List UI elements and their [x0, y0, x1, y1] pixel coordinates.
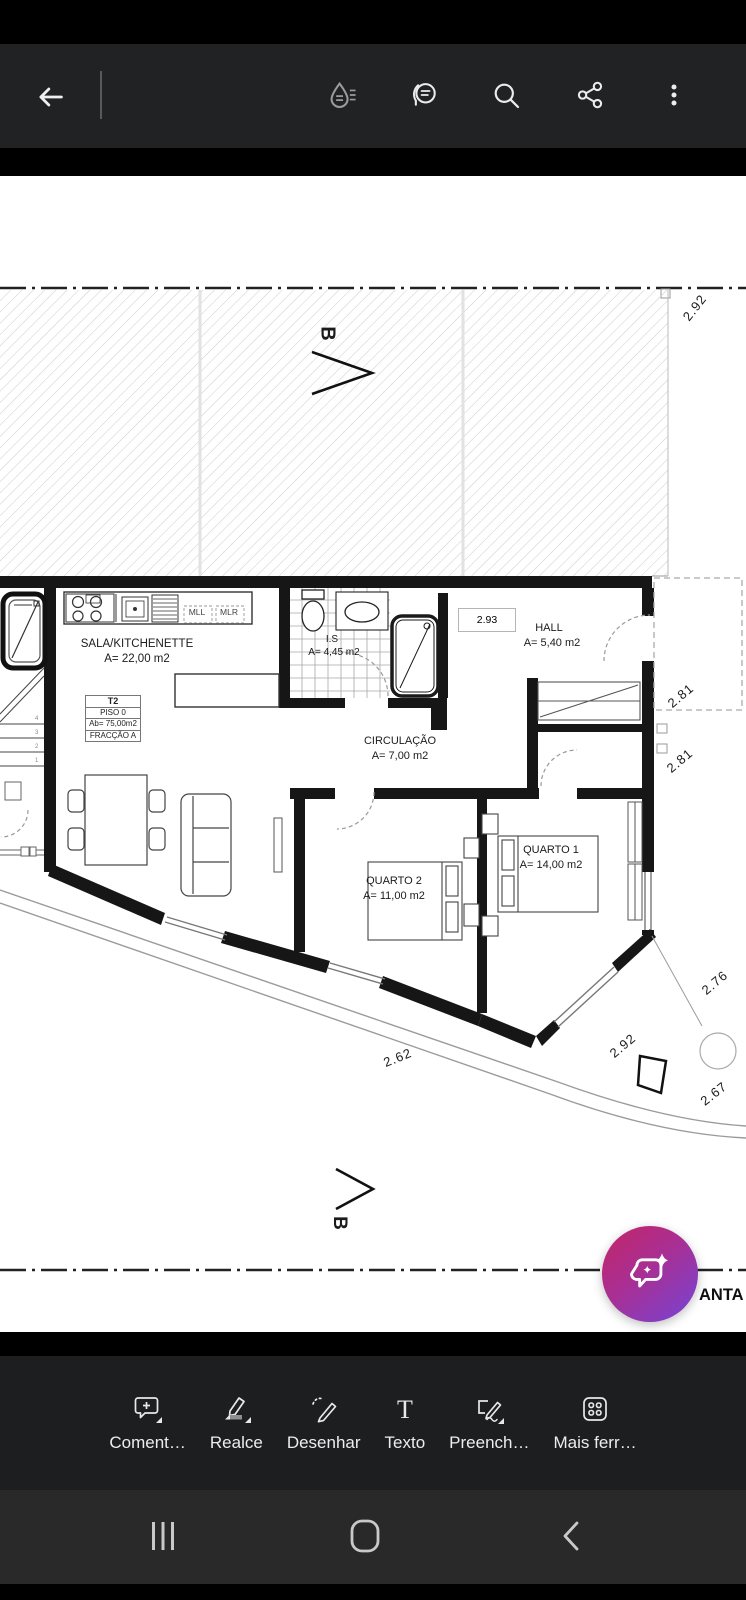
svg-text:T: T — [397, 1395, 413, 1424]
tool-label: Mais ferr… — [554, 1433, 637, 1453]
room-label-quarto2: QUARTO 2 — [336, 875, 452, 887]
annotation-toolbar: Coment… Realce Desenhar T Texto Preench… — [0, 1356, 746, 1490]
draw-pencil-icon — [309, 1394, 339, 1424]
room-label-circulacao: CIRCULAÇÃO — [340, 735, 460, 747]
share-icon[interactable] — [574, 79, 606, 111]
back-icon[interactable] — [34, 81, 66, 113]
recents-icon[interactable] — [146, 1519, 180, 1553]
stair-number: 4 — [35, 716, 38, 722]
page-bottom-gap — [0, 1332, 746, 1356]
room-area-quarto2: A= 11,00 m2 — [336, 890, 452, 902]
tool-label: Coment… — [109, 1433, 186, 1453]
tool-comment[interactable]: Coment… — [109, 1394, 186, 1453]
info-row-ab: Ab= 75,00m2 — [86, 719, 140, 731]
home-icon[interactable] — [348, 1519, 382, 1553]
highlighter-icon — [221, 1394, 251, 1424]
status-bar — [0, 0, 746, 44]
stair-number: 3 — [35, 730, 38, 736]
dimension-squares — [657, 724, 667, 753]
door-leaf — [274, 818, 282, 872]
info-row-piso: PISO 0 — [86, 708, 140, 720]
text-icon: T — [390, 1394, 420, 1424]
info-row-fraccao: FRACÇÃO A — [86, 731, 140, 742]
stair-number: 2 — [35, 744, 38, 750]
room-area-quarto1: A= 14,00 m2 — [496, 859, 606, 871]
entry-porch-dashed — [654, 578, 742, 710]
back-nav-icon[interactable] — [556, 1519, 590, 1553]
tool-label: Texto — [385, 1433, 426, 1453]
tool-draw[interactable]: Desenhar — [287, 1394, 361, 1453]
kitchen-label-mlr: MLR — [214, 607, 244, 617]
page-top-gap — [0, 148, 746, 176]
ai-assistant-fab[interactable] — [602, 1226, 698, 1322]
room-area-hall: A= 5,40 m2 — [497, 637, 607, 649]
kitchen-label-mll: MLL — [182, 607, 212, 617]
tool-more-tools[interactable]: Mais ferr… — [554, 1394, 637, 1453]
chat-sparkle-icon — [626, 1250, 674, 1298]
search-icon[interactable] — [490, 79, 522, 111]
fraction-info-table: T2 PISO 0 Ab= 75,00m2 FRACÇÃO A — [85, 695, 141, 742]
room-label-hall: HALL — [499, 622, 599, 634]
hall-closet — [538, 682, 640, 720]
bathtub — [392, 616, 438, 696]
tool-text[interactable]: T Texto — [385, 1394, 426, 1453]
stair-number: 1 — [35, 758, 38, 764]
partial-drawing-title: ANTA — [699, 1286, 746, 1305]
wardrobe — [628, 802, 642, 920]
tool-label: Preench… — [449, 1433, 529, 1453]
tool-highlight[interactable]: Realce — [210, 1394, 263, 1453]
more-options-icon[interactable] — [658, 79, 690, 111]
tool-fill-sign[interactable]: Preench… — [449, 1394, 529, 1453]
room-label-is: I.S — [300, 634, 364, 645]
app-bar — [0, 44, 746, 148]
tool-label: Desenhar — [287, 1433, 361, 1453]
view-comments-icon[interactable] — [409, 79, 441, 111]
more-tools-grid-icon — [580, 1394, 610, 1424]
dining-table-and-chairs — [68, 775, 165, 865]
room-label-sala: SALA/KITCHENETTE — [52, 638, 222, 650]
info-row-t2: T2 — [86, 696, 140, 708]
washbasin — [336, 592, 388, 630]
room-area-sala: A= 22,00 m2 — [62, 653, 212, 665]
bottom-black-strip — [0, 1584, 746, 1600]
toilet — [302, 590, 324, 631]
section-marker-b-bottom: B — [328, 1216, 350, 1230]
app-bar-divider — [100, 71, 102, 119]
street-circle — [700, 1033, 736, 1069]
bed-quarto1 — [482, 814, 598, 936]
room-area-is: A= 4,45 m2 — [300, 647, 368, 658]
room-label-quarto1: QUARTO 1 — [496, 844, 606, 856]
column — [638, 1056, 666, 1093]
fill-sign-icon — [474, 1394, 504, 1424]
section-marker-b-top: B — [316, 326, 339, 340]
tool-label: Realce — [210, 1433, 263, 1453]
sofa — [181, 794, 231, 896]
counter-band — [175, 674, 279, 707]
comment-icon — [133, 1394, 163, 1424]
room-area-circulacao: A= 7,00 m2 — [340, 750, 460, 762]
bed-quarto2 — [368, 838, 479, 940]
elevator — [3, 594, 45, 668]
liquid-mode-icon[interactable] — [327, 79, 359, 111]
android-nav-bar — [0, 1490, 746, 1584]
pdf-page[interactable]: SALA/KITCHENETTE A= 22,00 m2 T2 PISO 0 A… — [0, 176, 746, 1332]
